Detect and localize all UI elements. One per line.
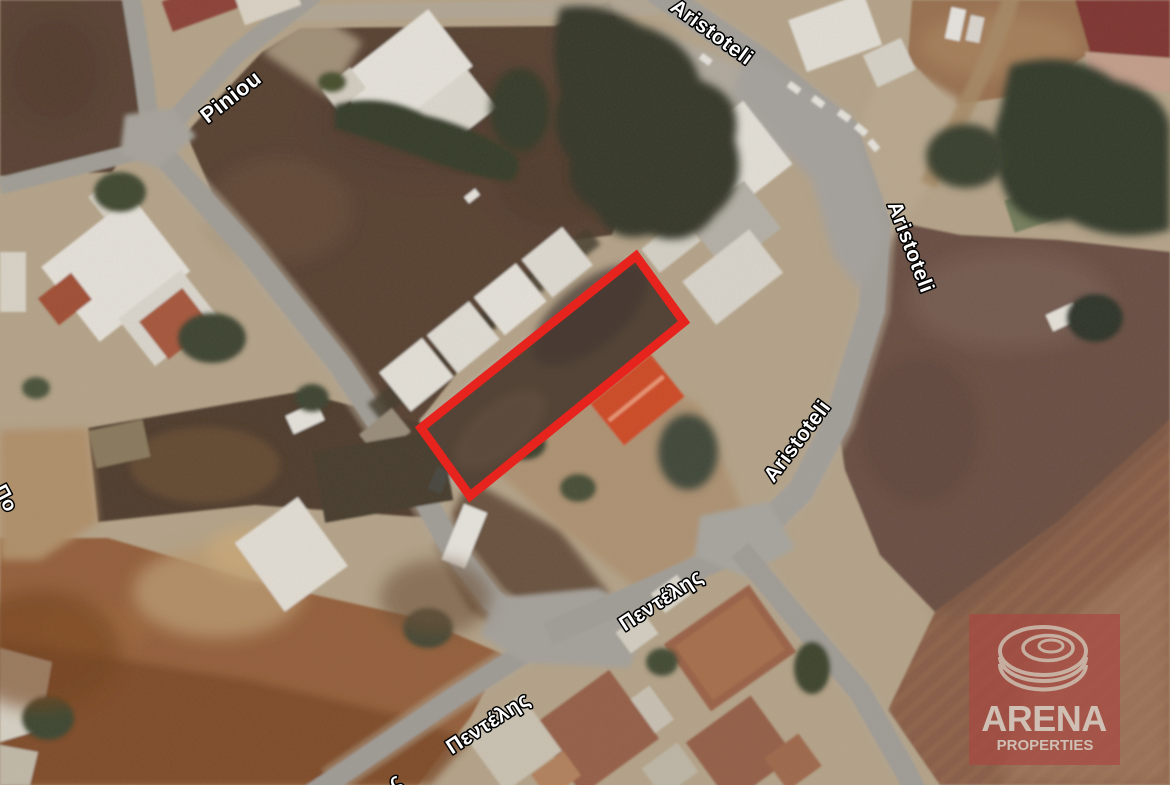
- svg-text:ARENA: ARENA: [981, 698, 1107, 739]
- svg-text:PROPERTIES: PROPERTIES: [997, 737, 1094, 754]
